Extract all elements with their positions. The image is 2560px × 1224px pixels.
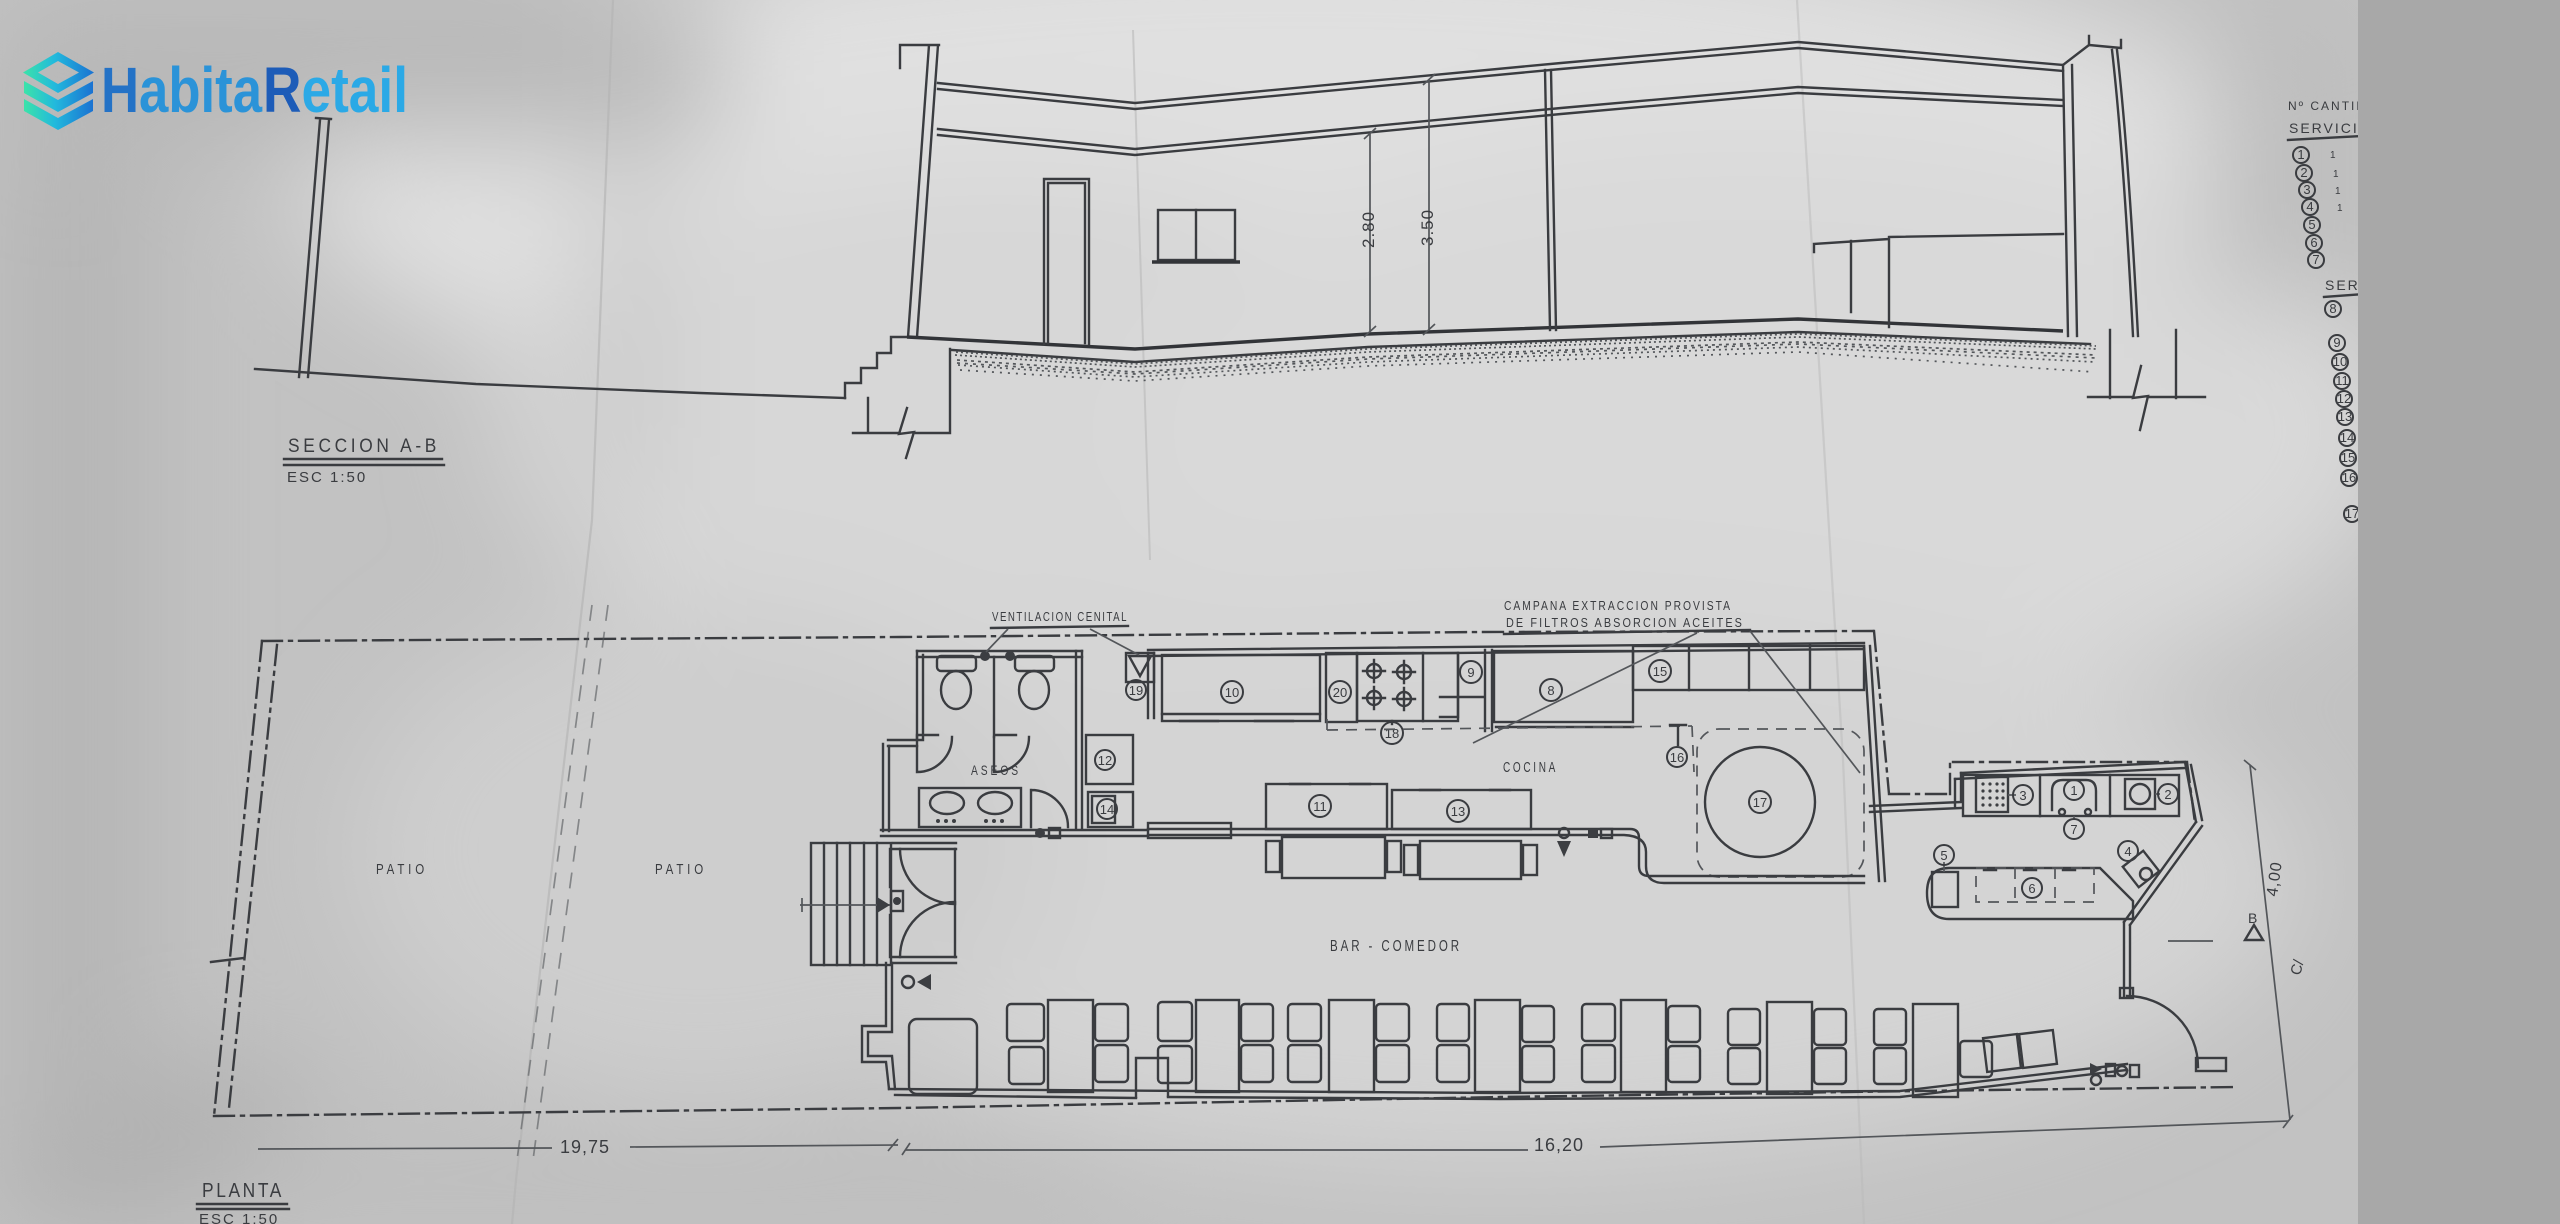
svg-text:1: 1 bbox=[2333, 169, 2339, 180]
svg-text:7: 7 bbox=[2312, 252, 2319, 267]
svg-text:4: 4 bbox=[2124, 844, 2131, 859]
svg-text:Habita: Habita bbox=[101, 54, 262, 126]
svg-text:ESC 1:50: ESC 1:50 bbox=[199, 1211, 279, 1224]
svg-text:14: 14 bbox=[2340, 430, 2354, 445]
svg-text:17: 17 bbox=[2345, 506, 2359, 521]
svg-text:9: 9 bbox=[1467, 665, 1474, 680]
svg-text:4: 4 bbox=[2306, 199, 2313, 214]
svg-text:18: 18 bbox=[1385, 726, 1399, 741]
svg-text:11: 11 bbox=[1313, 799, 1327, 814]
svg-text:11: 11 bbox=[2335, 373, 2349, 388]
svg-text:15: 15 bbox=[2341, 450, 2355, 465]
svg-text:16: 16 bbox=[1670, 750, 1684, 765]
svg-text:ASEOS: ASEOS bbox=[971, 762, 1021, 778]
svg-text:2: 2 bbox=[2300, 165, 2307, 180]
svg-text:5: 5 bbox=[1940, 848, 1947, 863]
svg-text:VENTILACION CENITAL: VENTILACION CENITAL bbox=[992, 609, 1128, 624]
svg-text:3.50: 3.50 bbox=[1418, 209, 1437, 246]
svg-text:2: 2 bbox=[2164, 787, 2171, 802]
svg-text:Retail: Retail bbox=[263, 54, 408, 126]
svg-text:12: 12 bbox=[1098, 753, 1112, 768]
svg-text:1: 1 bbox=[2297, 147, 2304, 162]
svg-text:16,20: 16,20 bbox=[1534, 1135, 1584, 1155]
svg-text:8: 8 bbox=[2329, 301, 2336, 316]
svg-text:3: 3 bbox=[2019, 788, 2026, 803]
svg-text:17: 17 bbox=[1753, 795, 1767, 810]
svg-text:7: 7 bbox=[2070, 822, 2077, 837]
svg-text:3: 3 bbox=[2303, 182, 2310, 197]
svg-text:ESC 1:50: ESC 1:50 bbox=[287, 469, 367, 486]
svg-text:PLANTA: PLANTA bbox=[202, 1180, 284, 1202]
svg-text:1: 1 bbox=[2330, 150, 2336, 161]
svg-text:16: 16 bbox=[2342, 470, 2356, 485]
svg-text:5: 5 bbox=[2308, 217, 2315, 232]
svg-text:15: 15 bbox=[1653, 664, 1667, 679]
svg-text:PATIO: PATIO bbox=[655, 861, 707, 878]
svg-text:COCINA: COCINA bbox=[1503, 759, 1558, 776]
svg-text:1: 1 bbox=[2337, 203, 2343, 214]
svg-text:13: 13 bbox=[2338, 409, 2352, 424]
svg-text:6: 6 bbox=[2028, 881, 2035, 896]
svg-text:14: 14 bbox=[1100, 802, 1114, 817]
svg-text:10: 10 bbox=[2333, 354, 2347, 369]
svg-text:6: 6 bbox=[2310, 235, 2317, 250]
svg-text:SECCION A-B: SECCION A-B bbox=[288, 436, 440, 457]
svg-text:10: 10 bbox=[1225, 685, 1239, 700]
svg-text:20: 20 bbox=[1333, 685, 1347, 700]
svg-text:13: 13 bbox=[1451, 804, 1465, 819]
svg-text:PATIO: PATIO bbox=[376, 861, 428, 878]
svg-text:12: 12 bbox=[2337, 391, 2351, 406]
svg-text:1: 1 bbox=[2070, 783, 2077, 798]
svg-text:B: B bbox=[2248, 910, 2257, 926]
svg-text:DE FILTROS ABSORCION ACEITE: DE FILTROS ABSORCION ACEITES bbox=[1506, 615, 1744, 630]
svg-text:1: 1 bbox=[2335, 186, 2341, 197]
svg-text:CAMPANA EXTRACCION PROVISTA: CAMPANA EXTRACCION PROVISTA bbox=[1504, 598, 1732, 613]
svg-text:19,75: 19,75 bbox=[560, 1137, 610, 1157]
svg-text:2.80: 2.80 bbox=[1359, 211, 1378, 248]
svg-text:19: 19 bbox=[1129, 683, 1143, 698]
svg-text:BAR - COMEDOR: BAR - COMEDOR bbox=[1330, 938, 1462, 955]
svg-text:9: 9 bbox=[2333, 335, 2340, 350]
svg-text:8: 8 bbox=[1547, 683, 1554, 698]
